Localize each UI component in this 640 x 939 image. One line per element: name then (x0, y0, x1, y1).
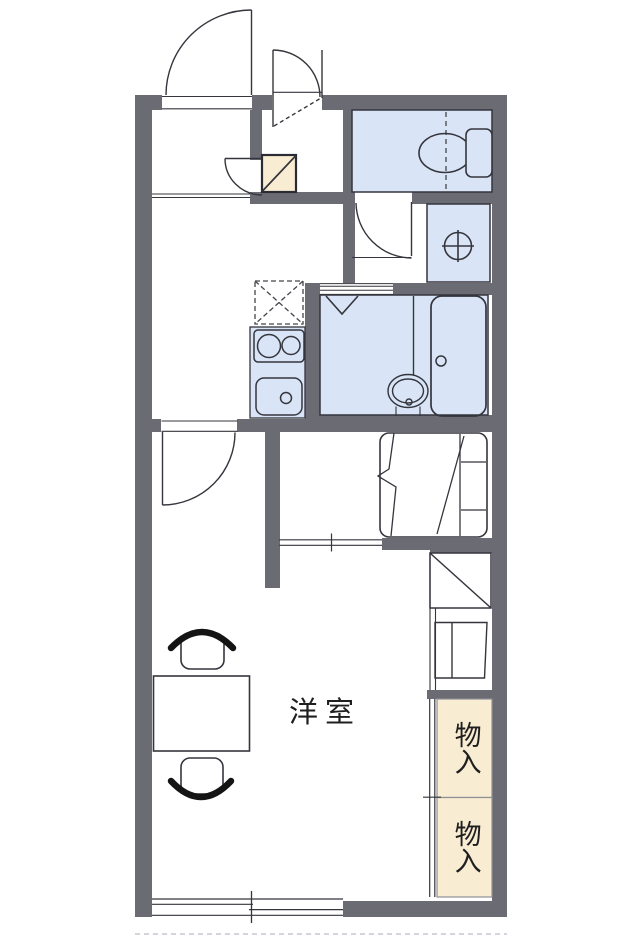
wall-bath-top-b (393, 283, 492, 295)
entrance-opening (162, 96, 252, 110)
toilet-door (352, 202, 412, 258)
entrance-door (162, 10, 252, 109)
wall-bedroom-left (265, 430, 280, 588)
floor-plan-drawing (0, 0, 640, 939)
wall-niche-top (430, 546, 492, 553)
wall-top-c (322, 95, 507, 110)
shoe-cabinet-door (225, 159, 262, 196)
sliding-door (279, 534, 382, 552)
floor-plan: 洋室 物入 物入 (0, 0, 640, 939)
wall-right (492, 95, 507, 917)
chair-bottom (171, 758, 231, 797)
wall-top-a (135, 95, 162, 110)
wall-bath-bottom (305, 415, 492, 432)
storage-box (430, 553, 491, 608)
storage-label-lower: 物入 (437, 797, 492, 897)
window-opening (152, 898, 343, 916)
entrance-step-lines (152, 194, 250, 198)
bed (378, 433, 487, 537)
wall-nook-left (250, 110, 262, 160)
wall-top-b (252, 95, 272, 110)
wall-toilet-bottom-b (412, 192, 492, 204)
wall-toilet-bottom-a (250, 192, 350, 204)
western-room-label: 洋室 (289, 689, 375, 731)
refrigerator-space (255, 281, 303, 324)
table (154, 676, 250, 751)
chair-top (171, 632, 233, 669)
closet-opening (272, 95, 322, 110)
closet-door (273, 50, 322, 127)
wall-kitchen-divider (305, 283, 320, 432)
storage-label-upper: 物入 (437, 699, 492, 797)
wall-bottom-b (343, 901, 507, 917)
bathroom (320, 295, 488, 415)
wall-kitchen-bottom-a (152, 419, 161, 432)
wall-bottom-a (135, 901, 152, 917)
wall-storage-top (427, 690, 492, 699)
room-door (162, 421, 238, 505)
bath-door-opening (320, 283, 393, 295)
wall-left (135, 95, 152, 917)
